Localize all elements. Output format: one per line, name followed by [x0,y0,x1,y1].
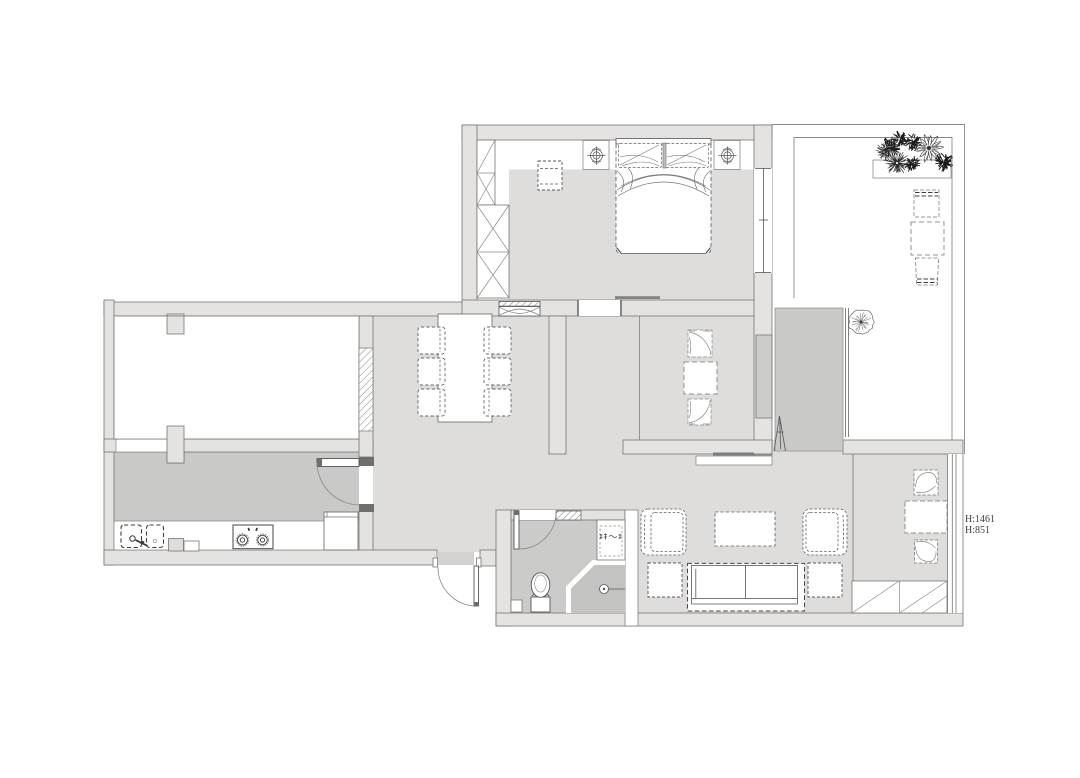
svg-text:H:851: H:851 [965,525,990,536]
svg-text:H:1461: H:1461 [965,514,995,525]
